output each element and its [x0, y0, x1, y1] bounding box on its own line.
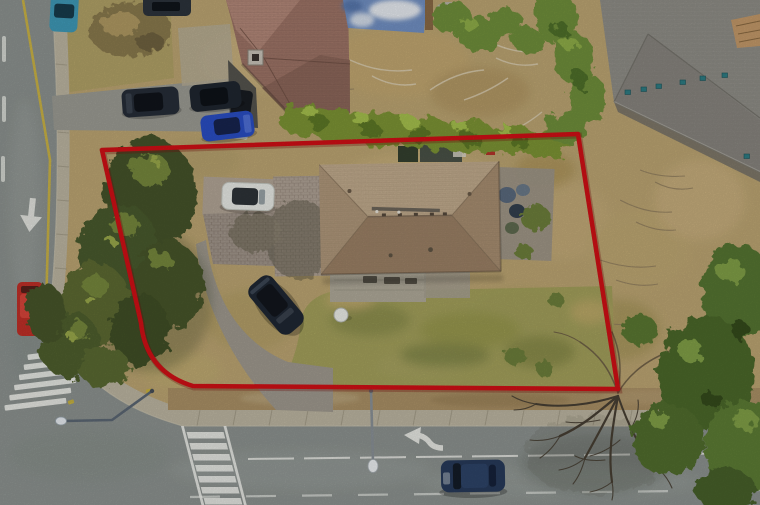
photo-grain-overlay — [0, 0, 760, 505]
aerial-photo — [0, 0, 760, 505]
